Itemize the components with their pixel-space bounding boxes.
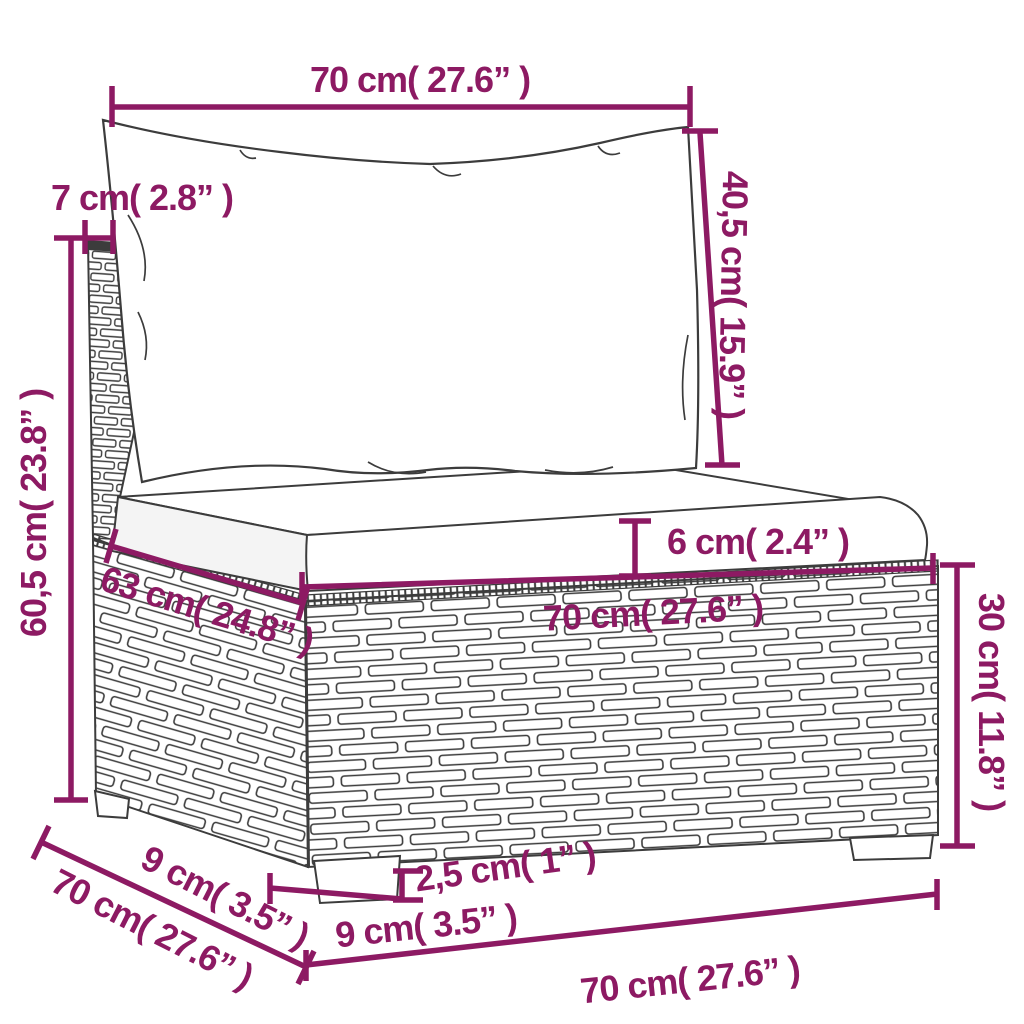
back-width-label: 70 cm( 27.6” ) <box>250 60 590 100</box>
dim-line-total-height <box>54 238 88 800</box>
leg-front-right <box>850 835 933 860</box>
sofa-base <box>93 534 938 867</box>
base-height-label: 30 cm( 11.8” ) <box>971 552 1011 852</box>
total-height-label: 60,5 cm( 23.8” ) <box>14 343 54 683</box>
back-cushion-body <box>103 120 698 482</box>
dimension-diagram: 70 cm( 27.6” ) 7 cm( 2.8” ) 40,5 cm( 15.… <box>0 0 1024 1024</box>
back-cushion <box>103 120 698 482</box>
back-frame-depth-label: 7 cm( 2.8” ) <box>32 178 252 218</box>
seat-thickness-label: 6 cm( 2.4” ) <box>653 522 863 562</box>
dim-line-base-height <box>940 565 975 846</box>
back-cushion-height-label: 40,5 cm( 15.9” ) <box>710 130 756 461</box>
